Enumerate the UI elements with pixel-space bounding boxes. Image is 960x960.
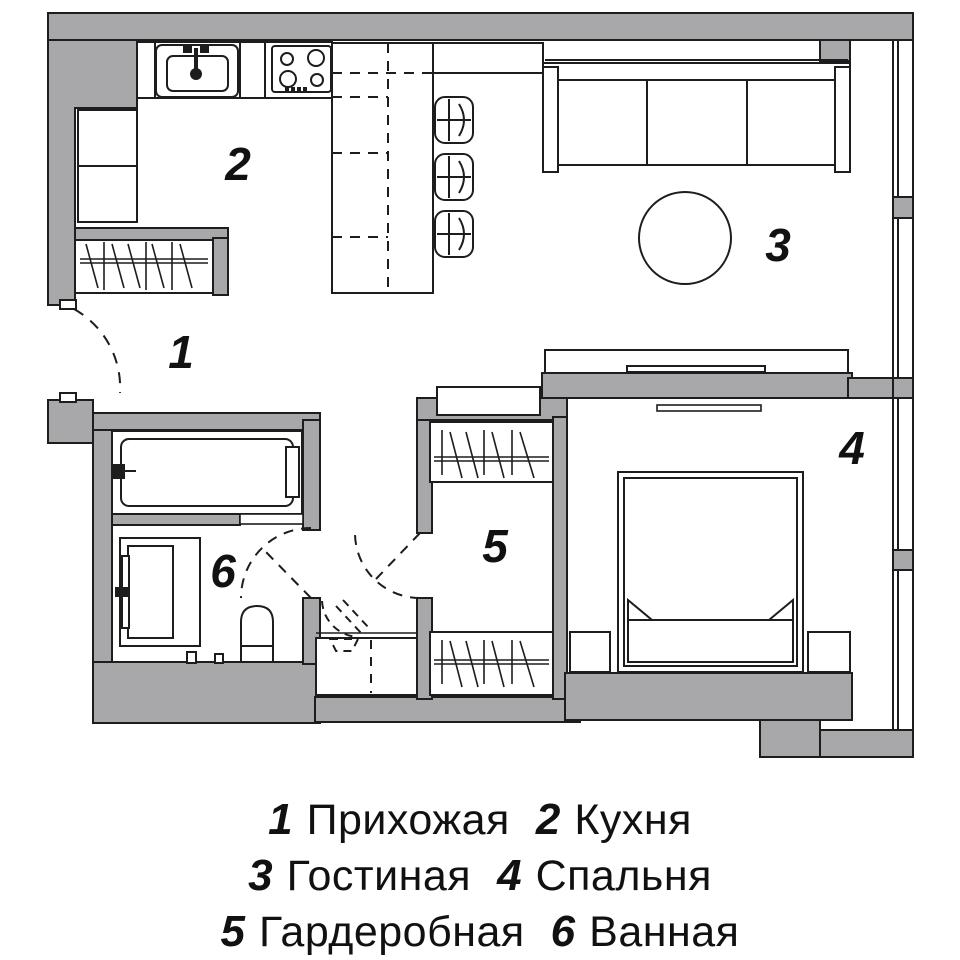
wardrobe-door-arc [355, 533, 420, 598]
entrance-door [60, 300, 120, 402]
legend-num-2: 2 [536, 792, 560, 848]
legend-name-5: Гардеробная [259, 904, 525, 960]
legend-entry-6: 6 Ванная [551, 904, 740, 960]
room-label-4: 4 [838, 422, 865, 474]
bathroom-door-arc [241, 528, 311, 598]
room-label-6: 6 [210, 545, 236, 597]
floor-plan-page: { "colors": { "wall": "#a8a8aa", "line":… [0, 0, 960, 960]
utility-closet [316, 600, 417, 695]
legend-line-1: 1 Прихожая 2 Кухня [0, 792, 960, 848]
legend-entry-5: 5 Гардеробная [221, 904, 525, 960]
legend-line-3: 5 Гардеробная 6 Ванная [0, 904, 960, 960]
bar-stool-1 [435, 97, 473, 143]
tv-console [545, 350, 848, 373]
legend-name-1: Прихожая [307, 792, 510, 848]
bar-stools [435, 97, 473, 257]
hall-closet [75, 228, 228, 295]
legend-entry-3: 3 Гостиная [248, 848, 471, 904]
legend-entry-1: 1 Прихожая [268, 792, 510, 848]
legend-num-4: 4 [497, 848, 521, 904]
legend-num-1: 1 [268, 792, 292, 848]
wardrobe-closet-top [430, 422, 553, 482]
nightstand-right [808, 632, 850, 672]
legend-num-6: 6 [551, 904, 575, 960]
kitchen-cabinet [78, 110, 137, 222]
room-label-3: 3 [765, 219, 791, 271]
floor-plan: 1 2 3 4 5 6 [0, 0, 960, 785]
bath-partition-sill [240, 514, 303, 524]
wardrobe-closet-bottom [430, 632, 553, 695]
hall-cabinet [437, 387, 540, 415]
room-label-5: 5 [482, 520, 509, 572]
bar-stool-3 [435, 211, 473, 257]
room-label-1: 1 [168, 326, 194, 378]
legend-line-2: 3 Гостиная 4 Спальня [0, 848, 960, 904]
bar-counter [433, 43, 543, 73]
nightstand-left [570, 632, 610, 672]
legend-num-3: 3 [248, 848, 272, 904]
legend-name-4: Спальня [536, 848, 712, 904]
entrance-door-arc [74, 309, 120, 393]
bedroom-tv [657, 405, 761, 411]
tv-living [627, 366, 765, 372]
legend-name-3: Гостиная [287, 848, 471, 904]
bathtub [112, 431, 302, 514]
bar-stool-2 [435, 154, 473, 200]
legend-name-2: Кухня [574, 792, 692, 848]
shower [116, 538, 200, 646]
legend-name-6: Ванная [589, 904, 739, 960]
legend-entry-4: 4 Спальня [497, 848, 712, 904]
round-table [639, 192, 731, 284]
bed [618, 472, 803, 672]
legend-num-5: 5 [221, 904, 245, 960]
legend-entry-2: 2 Кухня [536, 792, 692, 848]
sofa [543, 63, 850, 172]
room-label-2: 2 [224, 138, 251, 190]
legend: 1 Прихожая 2 Кухня 3 Гостиная 4 Спальня … [0, 792, 960, 960]
toilet [241, 606, 273, 662]
kitchen-island [332, 43, 433, 293]
